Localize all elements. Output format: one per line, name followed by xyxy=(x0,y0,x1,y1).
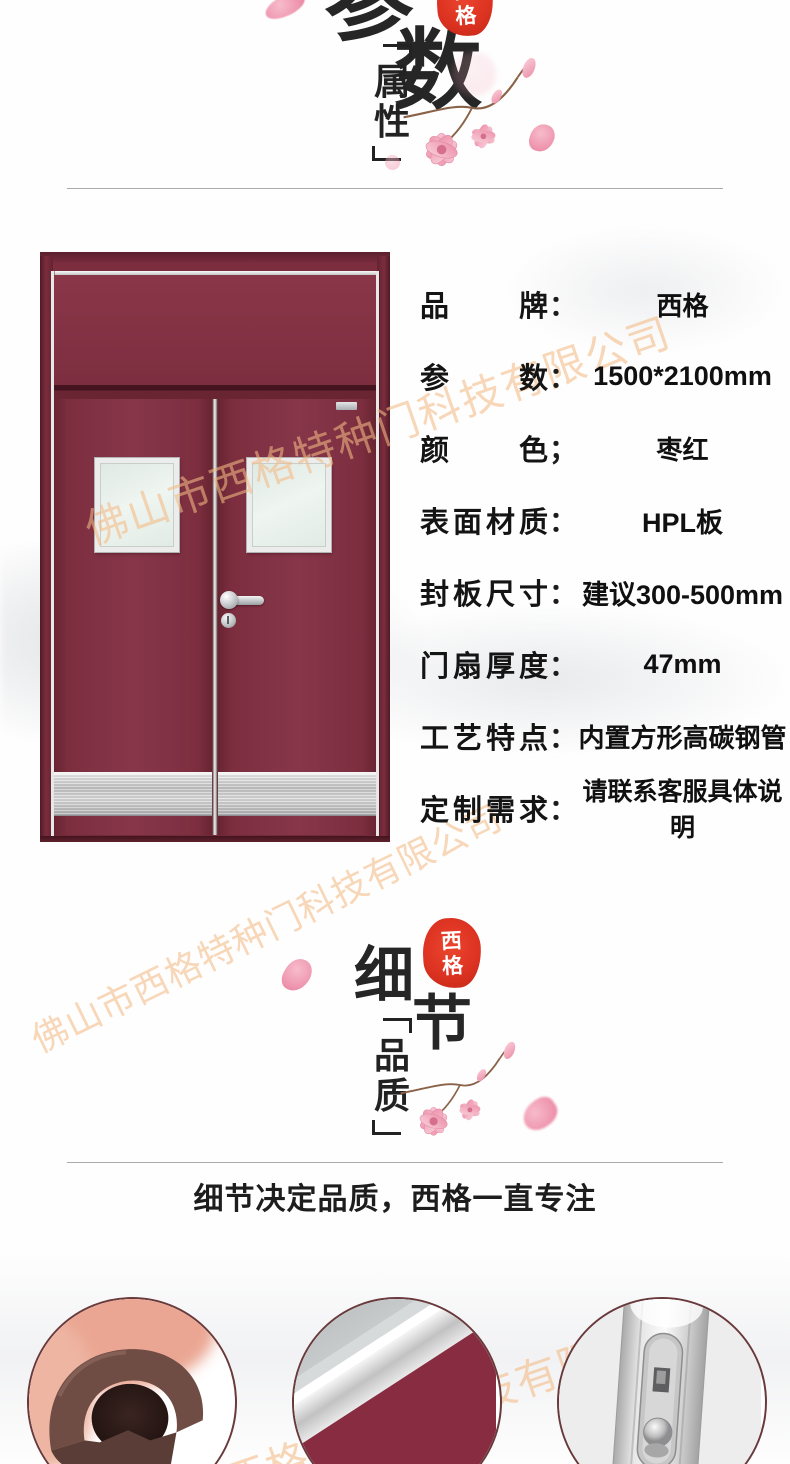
subtitle-char: 质 xyxy=(374,1076,410,1116)
bracket-bottom-icon xyxy=(372,1120,401,1135)
detail-title-char-top: 细 xyxy=(354,946,414,1006)
bracket-bottom-icon xyxy=(372,146,401,161)
petal-decoration xyxy=(517,1092,563,1136)
spec-label: 参数 xyxy=(420,355,548,397)
petal-decoration xyxy=(526,121,557,155)
spec-value: HPL板 xyxy=(577,501,788,540)
door-center-split xyxy=(212,399,218,835)
door-seal-strip-photo xyxy=(29,1299,231,1464)
detail-circle-lock-edge xyxy=(557,1297,767,1464)
subtitle-char: 品 xyxy=(374,1036,410,1076)
tagline: 细节决定品质，西格一直专注 xyxy=(0,1174,790,1218)
spec-value: 西格 xyxy=(577,286,788,323)
door-kick-plate-right xyxy=(218,772,376,816)
door-lock-cylinder xyxy=(221,613,236,628)
subtitle-char: 性 xyxy=(374,102,410,142)
petal-decoration xyxy=(278,954,317,996)
door-bottom-shadow xyxy=(40,836,390,842)
spec-label: 品牌 xyxy=(420,283,548,325)
spec-value: 内置方形高碳钢管 xyxy=(577,718,788,755)
product-detail-page: 佛山市西格特种门科技有限公司 佛山市西格特种门科技有限公司 佛山市西格特种门科技… xyxy=(0,0,790,1464)
spec-row-size: 参数 ： 1500*2100mm xyxy=(420,340,788,412)
door-kick-plate-left xyxy=(54,772,212,816)
spec-colon: ： xyxy=(549,716,577,756)
door-brand-nameplate xyxy=(336,402,357,410)
detail-subtitle-bracket: 品 质 xyxy=(370,1018,414,1135)
bracket-top-icon xyxy=(383,44,412,59)
spec-table: 品牌 ： 西格 参数 ： 1500*2100mm 颜色 ； 枣红 表面材质 ： … xyxy=(420,268,788,844)
door-handle-rosette xyxy=(220,591,238,609)
spec-label: 封板尺寸 xyxy=(420,571,548,613)
seal-char: 格 xyxy=(455,2,478,29)
spec-colon: ： xyxy=(549,788,577,828)
spec-colon: ： xyxy=(549,500,577,540)
seal-char: 西 xyxy=(440,927,462,953)
spec-value: 47mm xyxy=(577,649,788,680)
spec-label: 表面材质 xyxy=(420,499,548,541)
spec-row-custom: 定制需求 ： 请联系客服具体说明 xyxy=(420,772,788,844)
spec-colon: ； xyxy=(549,428,577,468)
spec-value: 枣红 xyxy=(577,430,788,467)
door-window-left xyxy=(95,458,179,552)
product-door-image xyxy=(40,252,390,842)
spec-row-brand: 品牌 ： 西格 xyxy=(420,268,788,340)
xige-brand-seal: 西 格 xyxy=(421,917,483,990)
spec-row-craft: 工艺特点 ： 内置方形高碳钢管 xyxy=(420,700,788,772)
spec-colon: ： xyxy=(549,644,577,684)
detail-circle-seal-strip xyxy=(27,1297,237,1464)
spec-value: 请联系客服具体说明 xyxy=(577,772,788,844)
door-transom-panel xyxy=(54,275,376,385)
spec-row-color: 颜色 ； 枣红 xyxy=(420,412,788,484)
spec-label: 门扇厚度 xyxy=(420,643,548,685)
params-subtitle-bracket: 属 性 xyxy=(370,44,414,161)
spec-colon: ： xyxy=(549,356,577,396)
bracket-top-icon xyxy=(383,1018,412,1033)
subtitle-char: 属 xyxy=(374,62,410,102)
spec-label: 定制需求 xyxy=(420,787,548,829)
door-trim-right xyxy=(376,271,379,836)
section-divider xyxy=(67,1162,723,1163)
lock-edge-photo xyxy=(559,1299,761,1464)
spec-label: 颜色 xyxy=(420,427,548,469)
spec-row-surface: 表面材质 ： HPL板 xyxy=(420,484,788,556)
detail-title-char-bottom: 节 xyxy=(412,994,472,1054)
spec-label: 工艺特点 xyxy=(420,715,548,757)
section-divider xyxy=(67,188,723,189)
spec-value: 建议300-500mm xyxy=(577,573,788,612)
door-window-right xyxy=(247,458,331,552)
spec-row-thickness: 门扇厚度 ： 47mm xyxy=(420,628,788,700)
door-lintel-shadow xyxy=(54,385,376,399)
spec-row-panel-size: 封板尺寸 ： 建议300-500mm xyxy=(420,556,788,628)
window-frame-corner-photo: E003921 CE xyxy=(294,1299,496,1464)
spec-value: 1500*2100mm xyxy=(577,361,788,392)
detail-circle-window-corner: E003921 CE xyxy=(292,1297,502,1464)
seal-char: 格 xyxy=(442,952,464,978)
petal-decoration xyxy=(262,0,308,23)
door-frame-header xyxy=(40,252,390,272)
spec-colon: ： xyxy=(549,572,577,612)
spec-colon: ： xyxy=(549,284,577,324)
